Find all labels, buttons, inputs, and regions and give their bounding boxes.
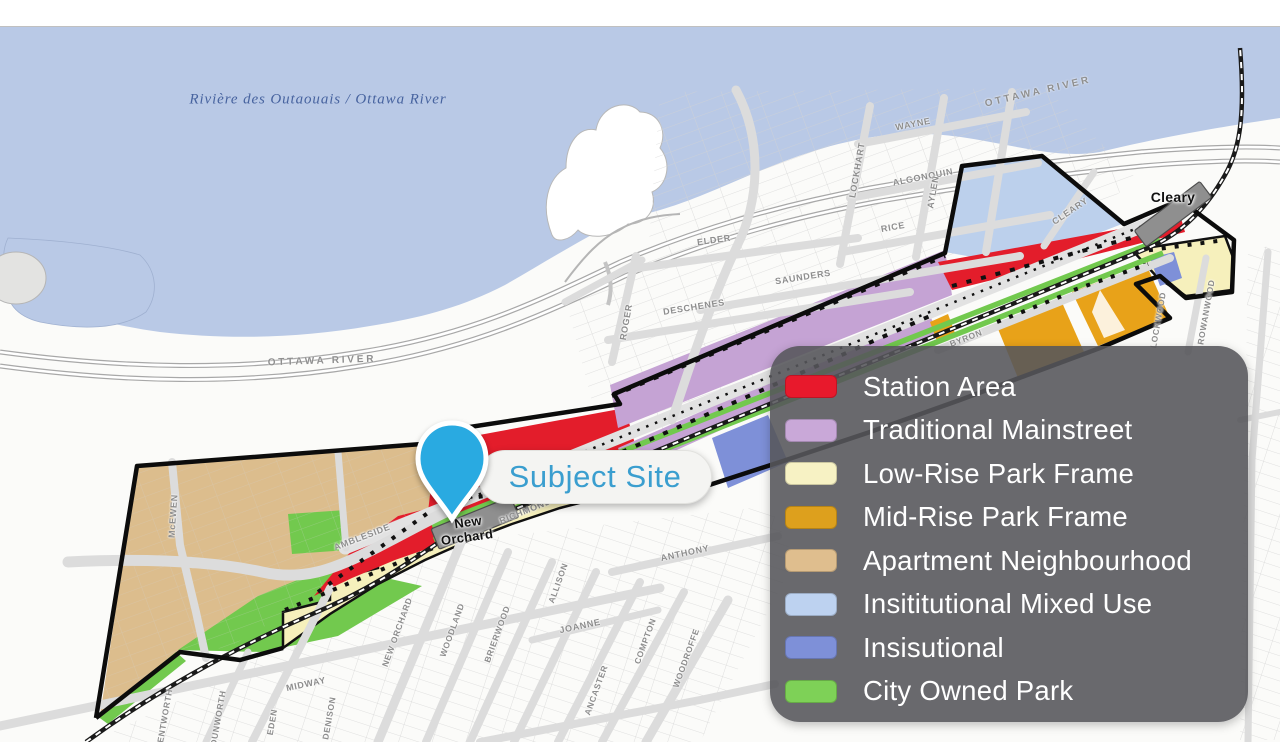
legend-item: City Owned Park — [785, 670, 1248, 714]
legend-label: Station Area — [863, 371, 1016, 403]
legend-label: Apartment Neighbourhood — [863, 545, 1192, 577]
pin-shape — [418, 423, 486, 519]
legend-label: Insititutional Mixed Use — [863, 588, 1152, 620]
legend-swatch — [785, 549, 837, 572]
legend-item: Station Area — [785, 365, 1248, 409]
legend-panel: Station AreaTraditional MainstreetLow-Ri… — [770, 346, 1248, 722]
legend-item: Low-Rise Park Frame — [785, 452, 1248, 496]
legend-swatch — [785, 593, 837, 616]
subject-site-pin — [405, 412, 505, 532]
legend-swatch — [785, 636, 837, 659]
legend-swatch — [785, 680, 837, 703]
planning-map: Rivière des Outaouais / Ottawa RiverOTTA… — [0, 0, 1280, 742]
map-margin — [0, 0, 1280, 26]
legend-label: Low-Rise Park Frame — [863, 458, 1134, 490]
subject-site-callout: Subject Site — [478, 450, 712, 504]
legend-item: Apartment Neighbourhood — [785, 539, 1248, 583]
legend-item: Traditional Mainstreet — [785, 409, 1248, 453]
legend-label: Traditional Mainstreet — [863, 414, 1132, 446]
legend-item: Mid-Rise Park Frame — [785, 496, 1248, 540]
legend-item: Insisutional — [785, 626, 1248, 670]
legend-item: Insititutional Mixed Use — [785, 583, 1248, 627]
legend-swatch — [785, 375, 837, 398]
subject-site-label: Subject Site — [509, 459, 682, 495]
legend-swatch — [785, 419, 837, 442]
legend-swatch — [785, 506, 837, 529]
legend-label: Mid-Rise Park Frame — [863, 501, 1128, 533]
legend-label: Insisutional — [863, 632, 1004, 664]
legend-label: City Owned Park — [863, 675, 1073, 707]
legend-swatch — [785, 462, 837, 485]
